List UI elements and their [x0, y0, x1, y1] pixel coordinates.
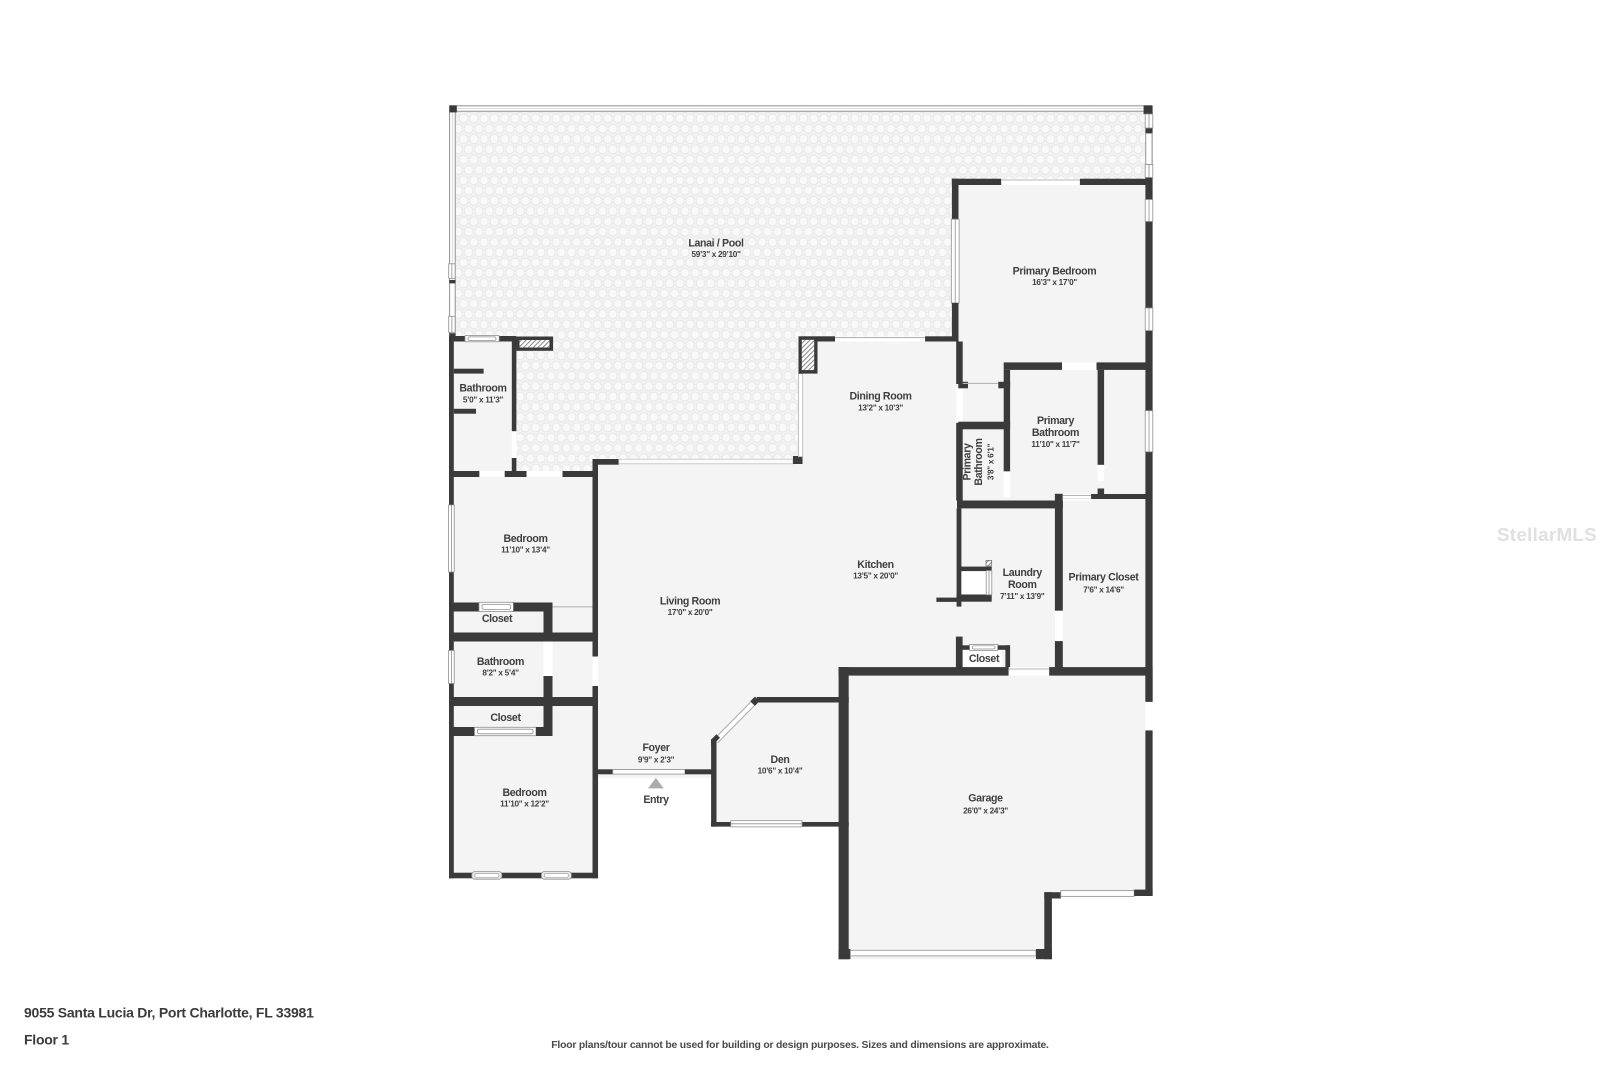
svg-text:9’9" x 2’3": 9’9" x 2’3"	[638, 755, 675, 764]
svg-text:16’3" x 17’0": 16’3" x 17’0"	[1032, 278, 1077, 287]
svg-text:Kitchen: Kitchen	[857, 559, 893, 571]
svg-text:Floor 1: Floor 1	[24, 1032, 69, 1048]
svg-text:Bedroom: Bedroom	[502, 787, 546, 799]
svg-text:11’10" x 13’4": 11’10" x 13’4"	[501, 546, 550, 555]
svg-text:8’2" x 5’4": 8’2" x 5’4"	[482, 668, 519, 677]
svg-text:26’0" x 24’3": 26’0" x 24’3"	[963, 806, 1008, 815]
svg-text:Lanai / Pool: Lanai / Pool	[688, 238, 744, 250]
svg-text:11’10" x 12’2": 11’10" x 12’2"	[500, 800, 549, 809]
svg-text:Dining Room: Dining Room	[849, 391, 911, 403]
svg-text:Primary: Primary	[961, 443, 973, 480]
svg-text:10’6" x 10’4": 10’6" x 10’4"	[758, 767, 803, 776]
svg-text:Floor plans/tour cannot be use: Floor plans/tour cannot be used for buil…	[551, 1040, 1049, 1051]
svg-text:3’8" x 6’1": 3’8" x 6’1"	[986, 443, 995, 480]
svg-text:Primary Bedroom: Primary Bedroom	[1013, 266, 1097, 278]
svg-text:7’11" x 13’9": 7’11" x 13’9"	[1000, 592, 1045, 601]
svg-text:Bathroom: Bathroom	[477, 656, 524, 668]
svg-text:Primary Closet: Primary Closet	[1069, 572, 1140, 584]
svg-text:Living Room: Living Room	[660, 595, 720, 607]
svg-text:Laundry: Laundry	[1003, 567, 1043, 579]
svg-text:Bedroom: Bedroom	[503, 533, 547, 545]
svg-text:7’6" x 14’6": 7’6" x 14’6"	[1083, 586, 1124, 595]
svg-text:StellarMLS: StellarMLS	[1497, 524, 1597, 545]
svg-text:9055 Santa Lucia Dr, Port Char: 9055 Santa Lucia Dr, Port Charlotte, FL …	[24, 1005, 314, 1021]
svg-text:13’2" x 10’3": 13’2" x 10’3"	[858, 404, 903, 413]
svg-text:Den: Den	[771, 754, 790, 766]
svg-text:Entry: Entry	[643, 794, 669, 806]
svg-text:59’3" x 29’10": 59’3" x 29’10"	[691, 250, 741, 259]
svg-text:Primary: Primary	[1037, 415, 1074, 427]
svg-text:Bathroom: Bathroom	[973, 438, 985, 485]
svg-text:Closet: Closet	[482, 613, 513, 625]
svg-text:13’5" x 20’0": 13’5" x 20’0"	[853, 572, 898, 581]
svg-text:11’10" x 11’7": 11’10" x 11’7"	[1031, 440, 1080, 449]
svg-text:Closet: Closet	[969, 653, 1000, 665]
svg-text:17’0" x 20’0": 17’0" x 20’0"	[668, 608, 713, 617]
svg-text:Foyer: Foyer	[642, 742, 669, 754]
svg-text:Garage: Garage	[968, 793, 1003, 805]
svg-text:5’0" x 11’3": 5’0" x 11’3"	[463, 396, 504, 405]
svg-text:Bathroom: Bathroom	[459, 383, 506, 395]
svg-text:Bathroom: Bathroom	[1032, 427, 1079, 439]
svg-text:Closet: Closet	[490, 712, 521, 724]
svg-text:Room: Room	[1008, 579, 1037, 591]
